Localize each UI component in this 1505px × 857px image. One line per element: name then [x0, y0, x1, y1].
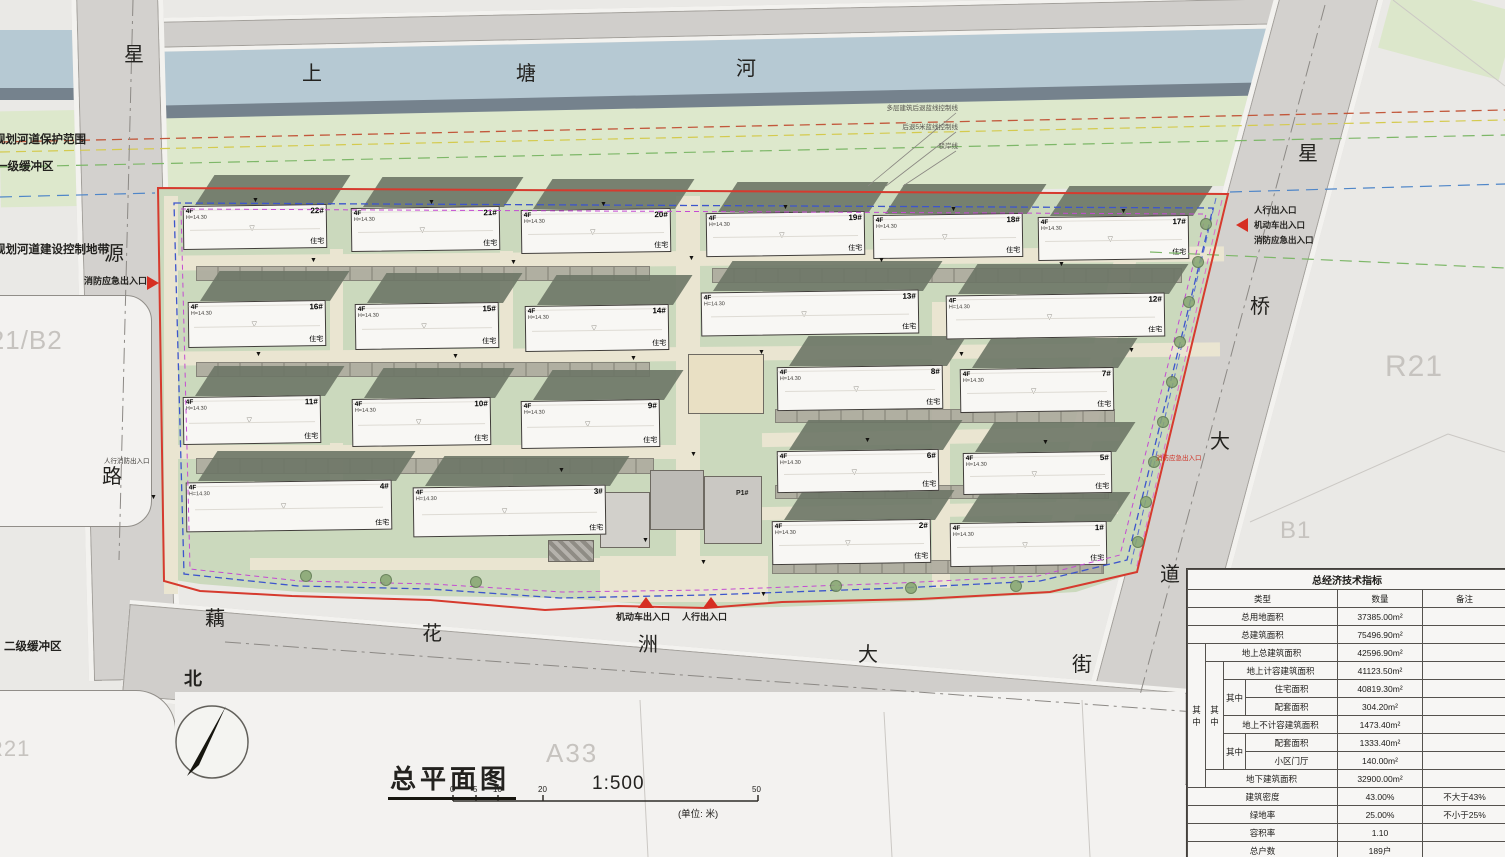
- building-1: 4FH=14.301#▽住宅: [950, 521, 1108, 567]
- east-vehicle-entrance-label: 机动车出入口: [1254, 221, 1305, 230]
- building-number: 9#: [648, 401, 657, 410]
- building-22: 4FH=14.3022#▽住宅: [183, 204, 328, 250]
- south-road-name-char: 花: [422, 624, 442, 644]
- building-shadow: [200, 271, 349, 301]
- unit-entrance-mark: ▽: [421, 322, 427, 330]
- scale-unit-note: (单位: 米): [678, 810, 718, 820]
- building-height: H=14.30: [966, 462, 987, 468]
- table-cell-note: [1423, 716, 1505, 734]
- building-9: 4FH=14.309#▽住宅: [521, 399, 661, 449]
- table-cell-note: [1423, 770, 1505, 788]
- building-shadow: [789, 336, 966, 366]
- building-number: 7#: [1102, 369, 1111, 378]
- building-use: 住宅: [1097, 399, 1111, 409]
- building-height: H=14.30: [704, 301, 725, 307]
- building-use: 住宅: [643, 435, 657, 445]
- building-height: H=14.30: [876, 224, 897, 230]
- south-road-name-char: 洲: [638, 635, 658, 655]
- building-number: 3#: [594, 487, 603, 496]
- table-cell-label: 绿地率: [1188, 806, 1338, 824]
- second-buffer-label: 二级缓冲区: [4, 642, 62, 654]
- building-use: 住宅: [1148, 325, 1162, 335]
- building-5: 4FH=14.305#▽住宅: [963, 451, 1113, 495]
- table-header-note: 备注: [1423, 590, 1505, 608]
- building-shadow: [533, 179, 694, 209]
- building-height: H=14.30: [354, 217, 375, 223]
- table-cell-label: 地上不计容建筑面积: [1224, 716, 1338, 734]
- building-number: 15#: [482, 304, 495, 313]
- table-cell-value: 1.10: [1338, 824, 1423, 842]
- unit-entrance-mark: ▽: [420, 226, 426, 234]
- table-cell-note: 不大于43%: [1423, 788, 1505, 806]
- building-shadow: [975, 422, 1135, 452]
- building-14: 4FH=14.3014#▽住宅: [525, 304, 670, 352]
- building-number: 14#: [652, 306, 665, 315]
- building-10: 4FH=14.3010#▽住宅: [352, 397, 492, 447]
- west-road-name-char: 路: [102, 467, 122, 487]
- unit-entrance-mark: ▽: [246, 416, 252, 424]
- river-annotation: 多层建筑后退蓝线控制线: [887, 106, 959, 113]
- south-road-name-char: 藕: [205, 609, 225, 629]
- building-number: 19#: [848, 213, 861, 222]
- building-use: 住宅: [926, 397, 940, 407]
- building-use: 住宅: [309, 334, 323, 344]
- unit-entrance-mark: ▽: [852, 468, 858, 476]
- building-number: 6#: [927, 451, 936, 460]
- unit-entrance-mark: ▽: [779, 231, 785, 239]
- south-vehicle-entrance-label: 机动车出入口: [616, 613, 670, 622]
- table-cell-label: 容积率: [1188, 824, 1338, 842]
- table-cell-value: 1473.40m²: [1338, 716, 1423, 734]
- unit-entrance-mark: ▽: [281, 502, 287, 510]
- building-shadow: [195, 366, 344, 396]
- table-cell-note: [1423, 626, 1505, 644]
- building-20: 4FH=14.3020#▽住宅: [521, 208, 672, 254]
- table-cell-value: 32900.00m²: [1338, 770, 1423, 788]
- unit-entrance-mark: ▽: [416, 418, 422, 426]
- building-number: 1#: [1095, 523, 1104, 532]
- table-cell-label: 地上总建筑面积: [1206, 644, 1338, 662]
- unit-entrance-mark: ▽: [1032, 470, 1038, 478]
- table-title: 总经济技术指标: [1188, 570, 1505, 590]
- unit-entrance-mark: ▽: [1022, 541, 1028, 549]
- east-road-name-char: 桥: [1250, 297, 1270, 317]
- building-shadow: [958, 264, 1188, 294]
- building-use: 住宅: [589, 523, 603, 533]
- river-control-label: 规划河道建设控制地带: [0, 245, 109, 257]
- building-height: H=14.30: [775, 530, 796, 536]
- building-12: 4FH=14.3012#▽住宅: [946, 292, 1166, 339]
- south-road-name-char: 大: [858, 645, 878, 665]
- unit-entrance-mark: ▽: [590, 228, 596, 236]
- scale-tick-label: 10: [493, 786, 502, 794]
- building-shadow: [718, 182, 888, 212]
- south-vehicle-entrance-arrow-icon: [638, 597, 654, 608]
- drawing-scale: 1:500: [592, 774, 645, 793]
- river-protection-label: 规划河道保护范围: [0, 135, 86, 147]
- building-2: 4FH=14.302#▽住宅: [772, 519, 932, 565]
- table-cell-value: 42596.90m²: [1338, 644, 1423, 662]
- building-number: 10#: [474, 399, 487, 408]
- building-number: 11#: [305, 397, 318, 406]
- building-height: H=14.30: [355, 408, 376, 414]
- zone-label-south: A33: [546, 740, 598, 766]
- building-6: 4FH=14.306#▽住宅: [777, 449, 940, 493]
- east-road-name-char: 道: [1160, 565, 1180, 585]
- building-use: 住宅: [1090, 553, 1104, 563]
- table-cell-label: 住宅面积: [1246, 680, 1338, 698]
- east-fire-exit-small-label: 消防应急出入口: [1156, 456, 1202, 463]
- economic-indicators-table: 总经济技术指标 类型 数量 备注 总用地面积 37385.00m² 总建筑面积 …: [1186, 568, 1505, 857]
- table-cell-value: 43.00%: [1338, 788, 1423, 806]
- building-shadow: [784, 490, 954, 520]
- building-3: 4FH=14.303#▽住宅: [413, 485, 607, 538]
- building-number: 5#: [1100, 453, 1109, 462]
- building-height: H=14.30: [780, 376, 801, 382]
- scale-tick-label: 0: [450, 786, 454, 794]
- building-shadow: [537, 275, 692, 305]
- scale-tick-label: 50: [752, 786, 761, 794]
- river-name-char: 河: [736, 59, 756, 79]
- building-shadow: [962, 492, 1130, 522]
- building-use: 住宅: [922, 479, 936, 489]
- building-use: 住宅: [375, 518, 389, 528]
- building-use: 住宅: [310, 236, 324, 246]
- building-number: 18#: [1006, 215, 1019, 224]
- table-cell-qizhong: 其中: [1224, 734, 1246, 770]
- zone-label-west: R21/B2: [0, 327, 63, 353]
- building-number: 17#: [1172, 217, 1185, 226]
- building-shadow: [713, 261, 942, 291]
- building-height: H=14.30: [949, 304, 970, 310]
- east-fire-exit-label: 消防应急出入口: [1254, 236, 1314, 245]
- building-number: 4#: [380, 482, 389, 491]
- table-cell-note: [1423, 680, 1505, 698]
- building-use: 住宅: [1095, 481, 1109, 491]
- table-cell-value: 304.20m²: [1338, 698, 1423, 716]
- building-4: 4FH=14.304#▽住宅: [186, 480, 393, 533]
- building-shadow: [533, 370, 683, 400]
- table-cell-note: [1423, 644, 1505, 662]
- building-use: 住宅: [1172, 247, 1186, 257]
- building-use: 住宅: [914, 551, 928, 561]
- building-height: H=14.30: [191, 311, 212, 317]
- building-height: H=14.30: [709, 222, 730, 228]
- building-number: 8#: [931, 367, 940, 376]
- building-13: 4FH=14.3013#▽住宅: [701, 289, 920, 336]
- north-label: 北: [184, 670, 202, 688]
- building-shadow: [1050, 186, 1212, 216]
- unit-entrance-mark: ▽: [502, 507, 508, 515]
- table-cell-note: [1423, 662, 1505, 680]
- building-number: 20#: [654, 210, 667, 219]
- building-use: 住宅: [1006, 245, 1020, 255]
- unit-entrance-mark: ▽: [1031, 387, 1037, 395]
- table-cell-label: 总用地面积: [1188, 608, 1338, 626]
- building-height: H=14.30: [524, 410, 545, 416]
- river-annotation: 后退5米蓝线控制线: [902, 125, 958, 132]
- building-height: H=14.30: [524, 219, 545, 225]
- table-cell-note: 不小于25%: [1423, 806, 1505, 824]
- building-height: H=14.30: [963, 378, 984, 384]
- table-cell-note: [1423, 734, 1505, 752]
- south-pedestrian-entrance-label: 人行出入口: [682, 613, 727, 622]
- table-cell-qizhong: 其中: [1188, 644, 1206, 788]
- building-shadow: [363, 177, 523, 207]
- table-cell-value: 1333.40m²: [1338, 734, 1423, 752]
- building-use: 住宅: [474, 433, 488, 443]
- unit-entrance-mark: ▽: [1047, 313, 1053, 321]
- unit-entrance-mark: ▽: [845, 539, 851, 547]
- table-cell-note: [1423, 752, 1505, 770]
- building-number: 16#: [309, 302, 322, 311]
- table-header-qty: 数量: [1338, 590, 1423, 608]
- table-cell-label: 地上计容建筑面积: [1224, 662, 1338, 680]
- table-cell-label: 地下建筑面积: [1206, 770, 1338, 788]
- table-cell-note: [1423, 608, 1505, 626]
- table-cell-label: 配套面积: [1246, 698, 1338, 716]
- zone-label-east: B1: [1280, 519, 1311, 543]
- table-header-type: 类型: [1188, 590, 1338, 608]
- building-use: 住宅: [654, 240, 668, 250]
- table-cell-label: 总户数: [1188, 842, 1338, 857]
- building-use: 住宅: [482, 336, 496, 346]
- building-number: 13#: [902, 292, 915, 301]
- table-cell-value: 40819.30m²: [1338, 680, 1423, 698]
- table-cell-value: 75496.90m²: [1338, 626, 1423, 644]
- table-cell-label: 总建筑面积: [1188, 626, 1338, 644]
- building-number: 12#: [1148, 295, 1161, 304]
- east-road-name-char: 星: [1298, 144, 1318, 164]
- west-road-name-char: 星: [124, 45, 144, 65]
- east-entrance-arrow-icon: [1236, 218, 1248, 232]
- building-shadow: [195, 175, 350, 205]
- river-annotation: 驳岸线: [939, 144, 959, 151]
- building-8: 4FH=14.308#▽住宅: [777, 365, 944, 411]
- table-cell-note: [1423, 824, 1505, 842]
- zone-label-southwest: R21: [0, 738, 30, 760]
- east-pedestrian-entrance-label: 人行出入口: [1254, 206, 1297, 215]
- building-height: H=14.30: [1041, 226, 1062, 232]
- zone-label-northeast: R21: [1385, 352, 1443, 382]
- first-buffer-label: 一级缓冲区: [0, 162, 54, 174]
- building-height: H=14.30: [416, 496, 437, 502]
- building-7: 4FH=14.307#▽住宅: [960, 367, 1115, 413]
- table-cell-value: 37385.00m²: [1338, 608, 1423, 626]
- building-shadow: [972, 338, 1137, 368]
- table-cell-label: 配套面积: [1246, 734, 1338, 752]
- south-pedestrian-entrance-arrow-icon: [703, 597, 719, 608]
- gatehouse-label: P1#: [736, 490, 748, 497]
- west-fire-exit-arrow-icon: [147, 276, 159, 290]
- building-15: 4FH=14.3015#▽住宅: [355, 302, 500, 350]
- table-cell-qizhong: 其中: [1206, 662, 1224, 770]
- table-cell-qizhong: 其中: [1224, 680, 1246, 716]
- unit-entrance-mark: ▽: [853, 385, 859, 393]
- table-cell-note: [1423, 842, 1505, 857]
- building-use: 住宅: [902, 322, 916, 332]
- building-18: 4FH=14.3018#▽住宅: [873, 213, 1024, 259]
- river-name-char: 上: [302, 64, 322, 84]
- east-road-name-char: 大: [1210, 432, 1230, 452]
- building-number: 22#: [310, 206, 323, 215]
- unit-entrance-mark: ▽: [1107, 235, 1113, 243]
- building-number: 2#: [919, 521, 928, 530]
- building-16: 4FH=14.3016#▽住宅: [188, 300, 327, 348]
- building-use: 住宅: [483, 238, 497, 248]
- building-17: 4FH=14.3017#▽住宅: [1038, 215, 1190, 261]
- river-name-char: 塘: [516, 64, 536, 84]
- building-19: 4FH=14.3019#▽住宅: [706, 211, 866, 257]
- building-use: 住宅: [304, 431, 318, 441]
- unit-entrance-mark: ▽: [251, 320, 257, 328]
- building-shadow: [425, 456, 629, 486]
- building-number: 21#: [483, 208, 496, 217]
- building-height: H=14.30: [358, 313, 379, 319]
- west-pedestrian-fire-label: 人行消防出入口: [104, 459, 150, 466]
- south-road-name-char: 街: [1072, 655, 1092, 675]
- building-height: H=14.30: [528, 315, 549, 321]
- building-use: 住宅: [848, 243, 862, 253]
- table-cell-value: 140.00m²: [1338, 752, 1423, 770]
- building-height: H=14.30: [186, 406, 207, 412]
- building-shadow: [198, 451, 415, 481]
- unit-entrance-mark: ▽: [591, 324, 597, 332]
- unit-entrance-mark: ▽: [942, 233, 948, 241]
- building-height: H=14.30: [186, 215, 207, 221]
- building-11: 4FH=14.3011#▽住宅: [183, 395, 322, 445]
- building-height: H=14.30: [189, 491, 210, 497]
- building-shadow: [364, 368, 514, 398]
- table-cell-label: 建筑密度: [1188, 788, 1338, 806]
- building-21: 4FH=14.3021#▽住宅: [351, 206, 501, 252]
- west-fire-exit-label: 消防应急出入口: [84, 277, 147, 286]
- drawing-title: 总平面图: [388, 766, 516, 800]
- table-cell-value: 41123.50m²: [1338, 662, 1423, 680]
- unit-entrance-mark: ▽: [585, 420, 591, 428]
- scale-tick-label: 20: [538, 786, 547, 794]
- table-cell-label: 小区门厅: [1246, 752, 1338, 770]
- table-cell-note: [1423, 698, 1505, 716]
- building-use: 住宅: [652, 338, 666, 348]
- building-shadow: [885, 184, 1046, 214]
- building-height: H=14.30: [953, 532, 974, 538]
- unit-entrance-mark: ▽: [249, 224, 255, 232]
- site-plan-canvas: 4FH=14.3022#▽住宅4FH=14.3021#▽住宅4FH=14.302…: [0, 0, 1505, 857]
- unit-entrance-mark: ▽: [801, 310, 807, 318]
- building-shadow: [789, 420, 962, 450]
- scale-tick-label: 5: [473, 786, 477, 794]
- table-cell-value: 25.00%: [1338, 806, 1423, 824]
- table-cell-value: 189户: [1338, 842, 1423, 857]
- building-height: H=14.30: [780, 460, 801, 466]
- building-shadow: [367, 273, 522, 303]
